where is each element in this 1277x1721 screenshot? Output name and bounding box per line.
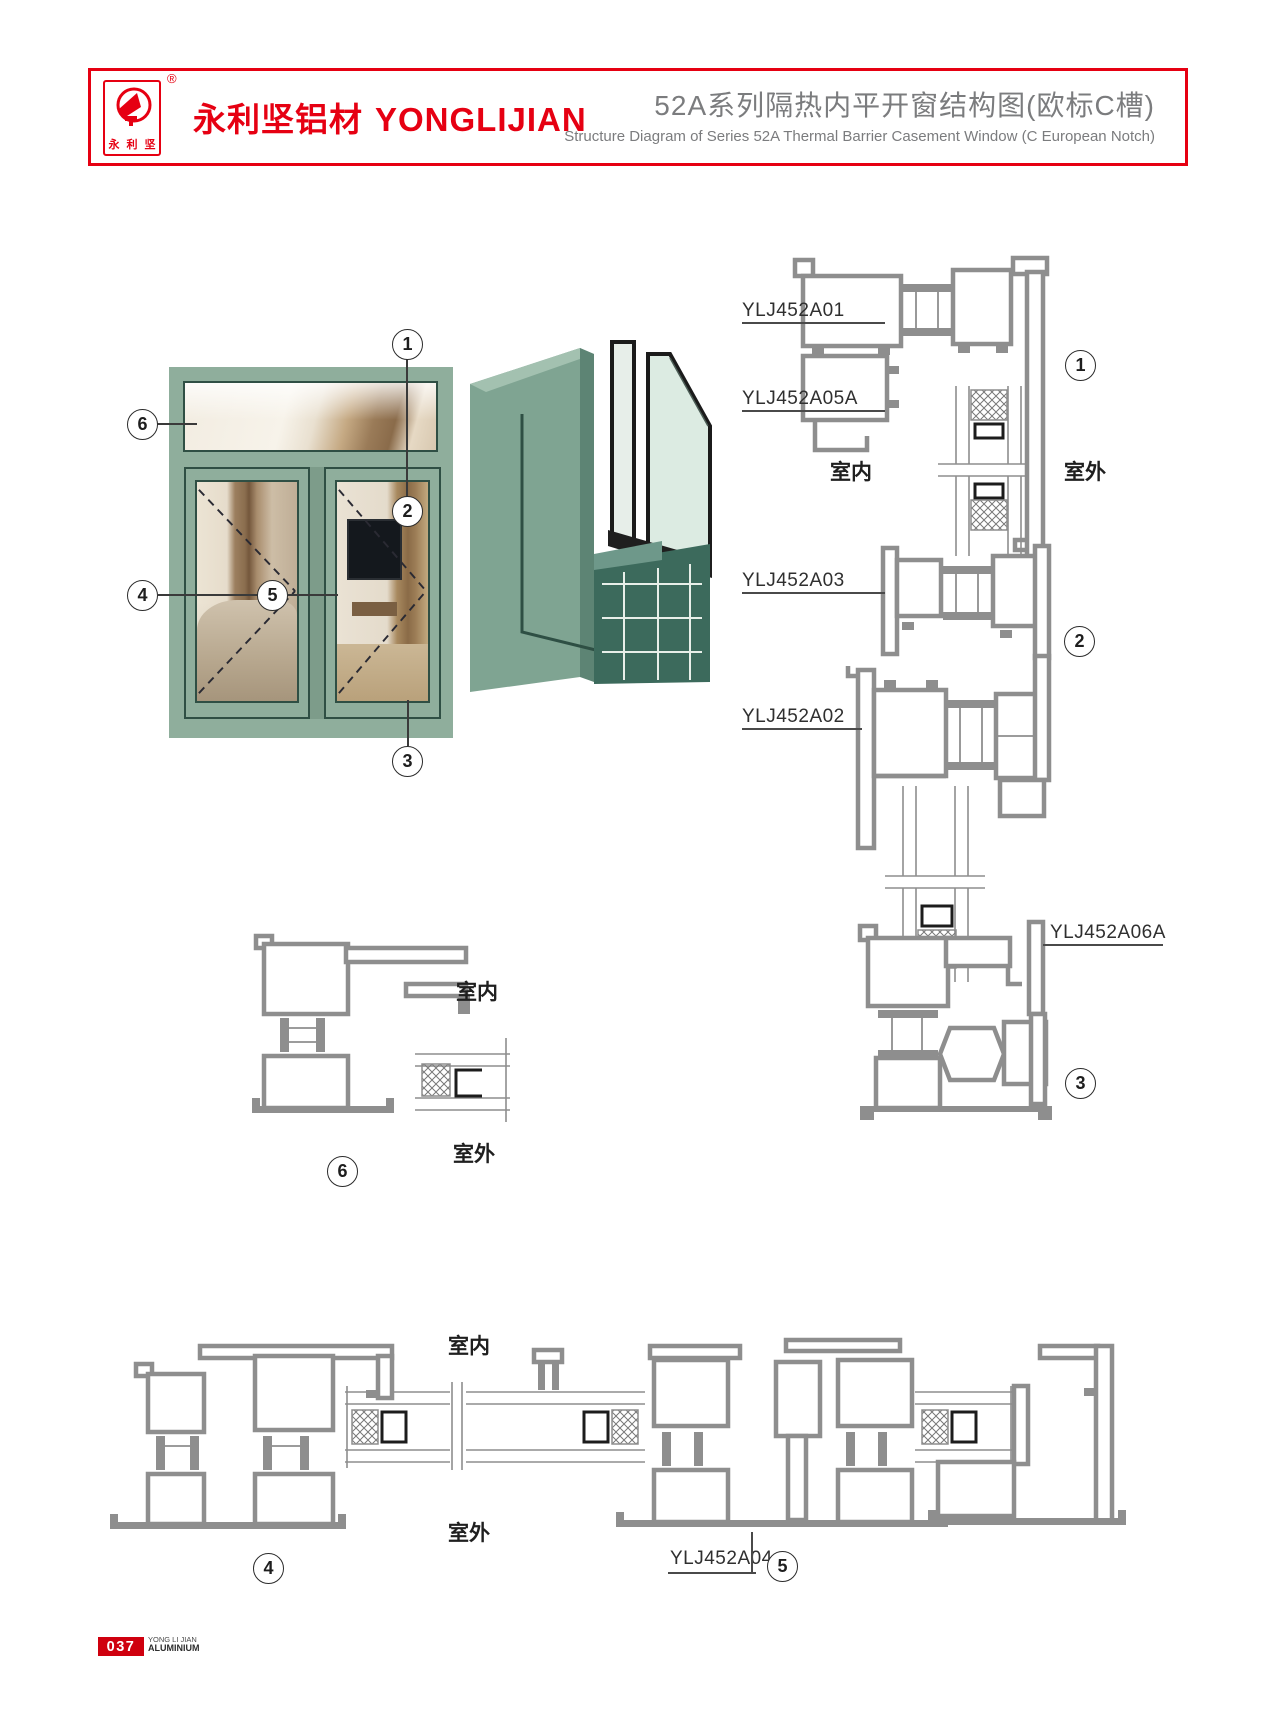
page-number-badge: 037 [98,1637,144,1656]
callout-4: 4 [127,580,158,611]
brand-name: 永利坚铝材 YONGLIJIAN [193,93,587,141]
section-callout-3: 3 [1065,1068,1096,1099]
logo-characters: 永 利 坚 [105,136,159,152]
label-YLJ452A01: YLJ452A01 [742,300,845,322]
section-callout-2: 2 [1064,626,1095,657]
label-YLJ452A02: YLJ452A02 [742,706,845,728]
transom-mullion-section [883,546,1049,658]
brand-name-en: YONGLIJIAN [375,101,587,139]
page-title-cn: 52A系列隔热内平开窗结构图(欧标C槽) [564,84,1155,124]
logo-emblem-icon [107,83,157,131]
left-jamb-section [110,1346,562,1529]
transom-glass-unit [938,386,1040,556]
callout-3: 3 [392,746,423,777]
section-callout-6: 6 [327,1156,358,1187]
label-pointer-YLJ452A04 [751,1532,753,1573]
callout-line-6 [157,423,197,425]
outdoor-label-right-stack: 室外 [1064,456,1106,486]
callout-1: 1 [392,329,423,360]
logo-char: 永 [109,136,120,152]
brand-name-cn: 永利坚铝材 [193,93,363,141]
label-line-YLJ452A01 [742,322,885,324]
callout-line-4-5 [158,594,258,596]
label-line-YLJ452A03 [742,592,885,594]
label-line-YLJ452A04 [668,1572,756,1574]
label-line-YLJ452A05A [742,410,885,412]
sill-section [860,922,1052,1120]
callout-2: 2 [392,496,423,527]
indoor-label-detail6: 室内 [456,976,498,1006]
indoor-label-bottom: 室内 [448,1330,490,1360]
page-title: 52A系列隔热内平开窗结构图(欧标C槽) Structure Diagram o… [564,84,1155,145]
callout-line-1-2 [406,359,408,497]
section-callout-1: 1 [1065,350,1096,381]
label-YLJ452A05A: YLJ452A05A [742,388,858,410]
label-line-YLJ452A02 [742,728,862,730]
label-YLJ452A06A: YLJ452A06A [1050,922,1166,944]
right-casement-sash [324,467,441,719]
catalog-page: 永 利 坚 ® 永利坚铝材 YONGLIJIAN 52A系列隔热内平开窗结构图(… [0,0,1277,1721]
left-casement-sash [184,467,310,719]
logo-char: 利 [127,136,138,152]
section-callout-4: 4 [253,1553,284,1584]
horizontal-sections-drawing [95,1338,1135,1543]
section-callout-5: 5 [767,1551,798,1582]
callout-line-3 [407,700,409,746]
indoor-label-right-stack: 室内 [830,456,872,486]
label-line-YLJ452A06A [1043,944,1163,946]
vertical-sections-drawing [740,255,1210,1135]
label-YLJ452A04: YLJ452A04 [670,1548,773,1570]
footer-brand: YONG LI JIAN ALUMINIUM [148,1636,200,1654]
callout-5: 5 [257,580,288,611]
transom-fixed-glass [183,381,438,452]
outdoor-label-bottom: 室外 [448,1517,490,1547]
brand-logo: 永 利 坚 [103,80,161,156]
label-YLJ452A03: YLJ452A03 [742,570,845,592]
window-photo-illustration [169,367,453,738]
registered-trademark-icon: ® [167,71,177,86]
glass-strip-right [915,1386,1013,1468]
casement-frame-section [848,656,1049,848]
page-title-en: Structure Diagram of Series 52A Thermal … [564,128,1155,145]
detail-6-section-drawing [250,928,525,1133]
profile-corner-3d-render [462,332,714,694]
header: 永 利 坚 ® 永利坚铝材 YONGLIJIAN 52A系列隔热内平开窗结构图(… [88,68,1188,166]
outdoor-label-detail6: 室外 [453,1138,495,1168]
logo-char: 坚 [145,136,156,152]
callout-line-5 [288,594,338,596]
central-mullion-section [616,1340,948,1527]
callout-6: 6 [127,409,158,440]
footer-brand-line2: ALUMINIUM [148,1644,200,1654]
detail-6-glass-unit [415,1038,510,1122]
